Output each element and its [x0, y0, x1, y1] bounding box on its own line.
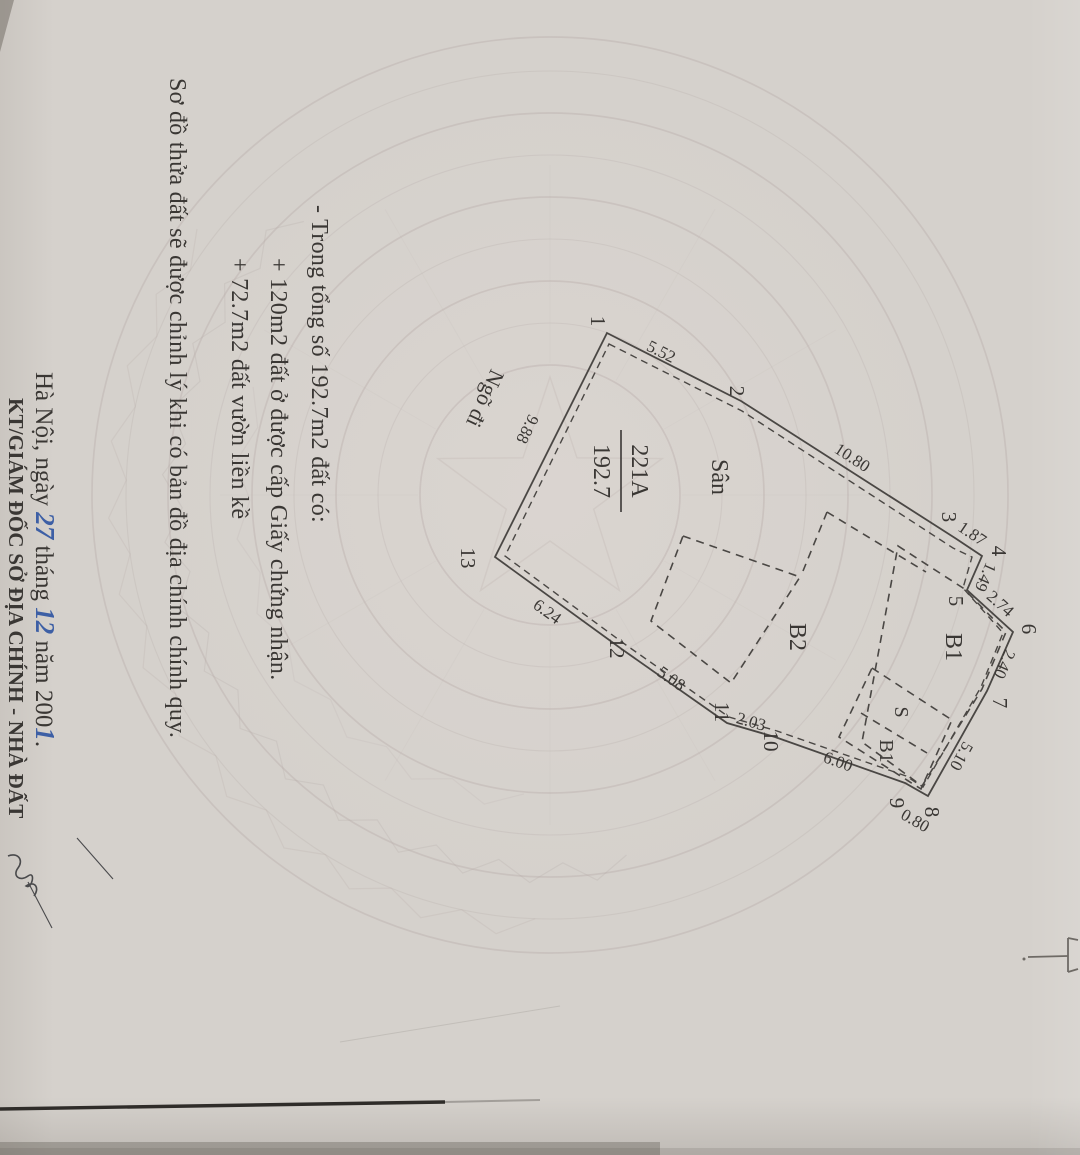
handwritten-day: 27 — [30, 511, 60, 541]
year-printed: 200 — [30, 690, 57, 728]
edge-10-11: 2.03 — [734, 708, 768, 734]
paper-fold-line-faint — [445, 1100, 540, 1102]
signature-block: Hà Nội, ngày 27 tháng 12 năm 2001. KT/GI… — [4, 372, 113, 928]
structure-corner-dash — [803, 512, 827, 571]
signer-title: KT/GIÁM ĐỐC SỞ ĐỊA CHÍNH - NHÀ ĐẤT — [4, 398, 28, 818]
annex-b1-label: B1 — [875, 739, 897, 762]
paper-curl-line — [340, 1006, 560, 1042]
frame-corner-dot — [1023, 958, 1026, 961]
bottom-shadow-band-2 — [0, 1148, 1080, 1155]
signature-date-line: Hà Nội, ngày 27 tháng 12 năm 2001. — [30, 372, 60, 747]
vertex-5: 5 — [944, 596, 968, 607]
annex-s-label: S — [890, 706, 912, 717]
month-word: tháng — [30, 539, 57, 607]
parcel-number: 221A — [626, 444, 652, 498]
note-line-4: Sơ đồ thửa đất sẽ được chỉnh lý khi có b… — [164, 78, 190, 738]
date-period: . — [30, 741, 57, 747]
yard-label: Sân — [706, 459, 732, 495]
year-word: năm — [30, 634, 57, 690]
note-line-2: + 120m2 đất ở được cấp Giấy chứng nhận. — [265, 258, 291, 681]
handwritten-month: 12 — [30, 607, 60, 634]
building-b2-label: B2 — [784, 623, 810, 651]
vertex-1: 1 — [586, 316, 610, 327]
frame-corner-icon — [1028, 938, 1078, 972]
signature-squiggle-icon — [8, 838, 113, 928]
vertex-numbers: 1 2 3 4 5 6 7 8 9 10 11 12 13 — [456, 316, 1041, 818]
note-line-1: - Trong tổng số 192.7m2 đất có: — [306, 205, 332, 523]
notes-block: - Trong tổng số 192.7m2 đất có: + 120m2 … — [164, 78, 332, 738]
vertex-4: 4 — [987, 546, 1011, 557]
structure-b2-outline — [651, 536, 800, 683]
vertex-11: 11 — [710, 702, 734, 722]
structure-s-b1-outline — [839, 668, 952, 789]
document-canvas: 221A 192.7 Sân B2 B1 S B1 Ngõ đi 1 2 3 4… — [0, 0, 1080, 1155]
building-b1-label: B1 — [940, 633, 966, 661]
scanned-cadastral-document: 221A 192.7 Sân B2 B1 S B1 Ngõ đi 1 2 3 4… — [0, 0, 1080, 1155]
vertex-13: 13 — [456, 548, 480, 569]
edge-2-3: 10.80 — [831, 439, 873, 476]
edge-length-labels: 5.52 10.80 1.87 1.49 2.74 2.40 5.10 0.80… — [512, 336, 1019, 836]
vertex-3: 3 — [937, 512, 961, 523]
handwritten-year-digit: 1 — [30, 727, 60, 741]
edge-13-1: 9.88 — [512, 412, 542, 447]
vertex-12: 12 — [605, 638, 629, 659]
vertex-6: 6 — [1017, 624, 1041, 635]
edge-11-12: 5.08 — [654, 662, 689, 695]
note-line-3: + 72.7m2 đất vườn liền kề — [226, 258, 252, 519]
edge-9-10: 6.00 — [821, 748, 855, 776]
vertex-7: 7 — [988, 698, 1012, 709]
edge-3-4: 1.87 — [955, 517, 991, 550]
date-prefix: Hà Nội, ngày — [30, 372, 57, 512]
edge-1-2: 5.52 — [644, 336, 679, 366]
parcel-area: 192.7 — [588, 444, 614, 498]
top-left-edge-mark — [0, 0, 14, 52]
alley-label: Ngõ đi — [461, 366, 509, 431]
vertex-2: 2 — [725, 386, 749, 397]
paper-fold-line — [0, 1102, 445, 1109]
